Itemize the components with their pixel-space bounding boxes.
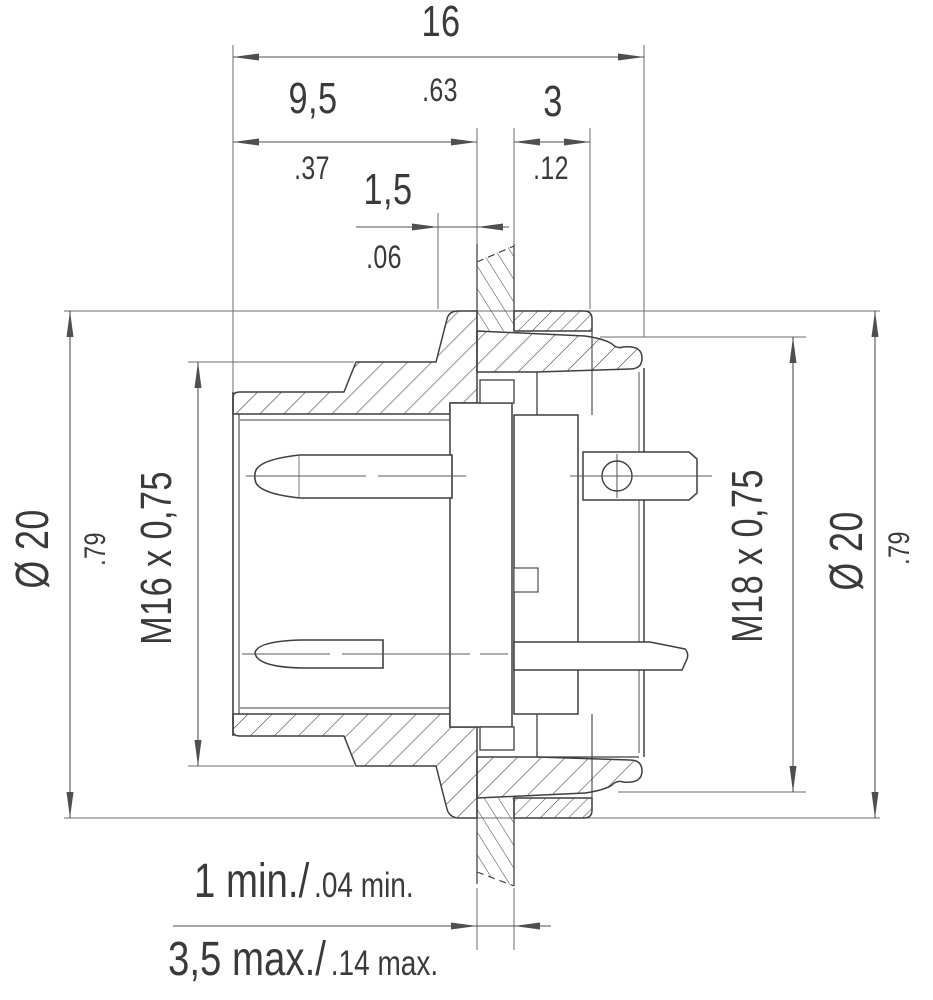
rear-flange-lower-section	[514, 798, 592, 818]
dim-label-rear-thread: M18 x 0,75	[726, 469, 770, 643]
dim-label-front-thread: M16 x 0,75	[135, 471, 179, 645]
dim-label-gap-inch: .06	[366, 241, 402, 273]
insulator-blocks	[450, 380, 578, 750]
upper-pin	[255, 455, 452, 498]
technical-drawing-page: 16 .63 9,5 .37 3 .12 1,5 .06 Ø 20 .79 M1…	[0, 0, 933, 1000]
dim-label-rear-flange-inch: .12	[533, 152, 569, 184]
dim-label-front-mm: 9,5	[289, 77, 338, 121]
dim-label-left-diameter-inch: .79	[81, 532, 111, 566]
dim-label-overall-mm: 16	[422, 0, 461, 44]
panel-max-inch: .14 max.	[331, 946, 438, 981]
dim-label-gap-mm: 1,5	[364, 168, 413, 212]
connector-body-sections	[233, 311, 642, 818]
panel-min-inch: .04 min.	[314, 868, 414, 903]
dim-label-right-diameter-inch: .79	[885, 531, 915, 565]
rear-cone-lower-section	[477, 757, 642, 798]
rear-flange-upper-section	[514, 311, 592, 331]
panel-thickness-min-note: 1 min./ .04 min.	[194, 858, 414, 906]
panel-min-metric: 1 min./	[194, 858, 309, 906]
panel-thickness-max-note: 3,5 max./ .14 max.	[168, 936, 438, 984]
panel-max-metric: 3,5 max./	[168, 936, 326, 984]
dim-label-rear-flange-mm: 3	[543, 80, 562, 124]
dim-label-front-inch: .37	[294, 152, 330, 184]
dim-label-right-diameter-mm: Ø 20	[823, 511, 869, 590]
lower-solder-blade	[514, 642, 688, 670]
dim-label-left-diameter-mm: Ø 20	[9, 509, 55, 588]
dim-label-overall-inch: .63	[422, 74, 458, 106]
